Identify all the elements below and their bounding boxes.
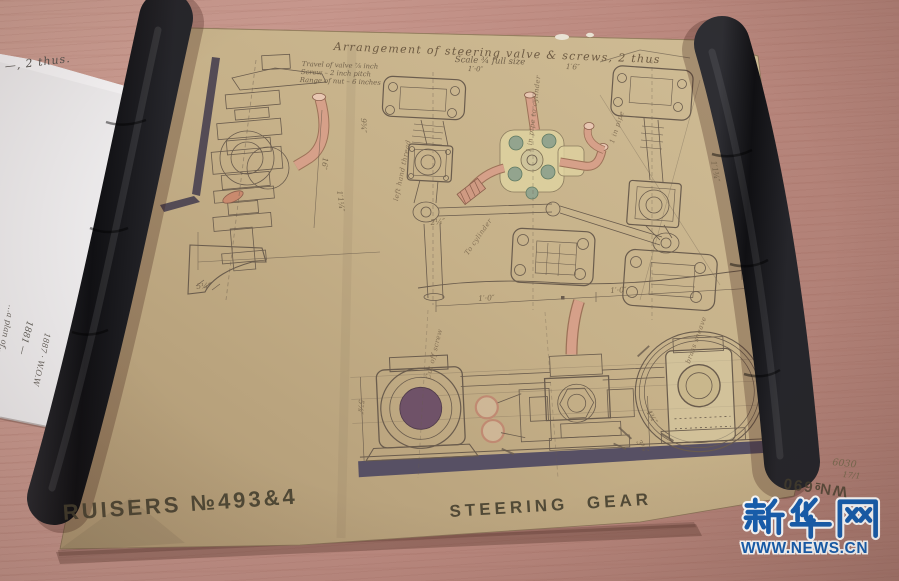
dim-9-3-4: 9¾″: [359, 118, 369, 133]
watermark-site-url: WWW.NEWS.CN: [741, 540, 868, 558]
xinhuanet-logo: [746, 500, 876, 537]
dim-5-1-4: 5¼″: [196, 281, 211, 291]
dim-1ft-b: 1′·0″: [610, 285, 627, 295]
hand-number: 6030: [832, 457, 857, 470]
dim-16in: 16″: [320, 157, 330, 170]
drawing-scale-sub: 1′·0″: [468, 65, 484, 74]
dim-5-7-8: 5⅞″: [356, 399, 366, 415]
hand-date: 17/1: [842, 470, 861, 481]
dim-2-1-4: 2¼″: [430, 217, 446, 227]
dim-1ft-a: 1′·0″: [478, 293, 495, 303]
photo-scene: —, 2 thus. …a plan of… 1881 — 1887 · W.O…: [0, 0, 899, 581]
dim-1ft6: 1′6″: [566, 62, 580, 71]
